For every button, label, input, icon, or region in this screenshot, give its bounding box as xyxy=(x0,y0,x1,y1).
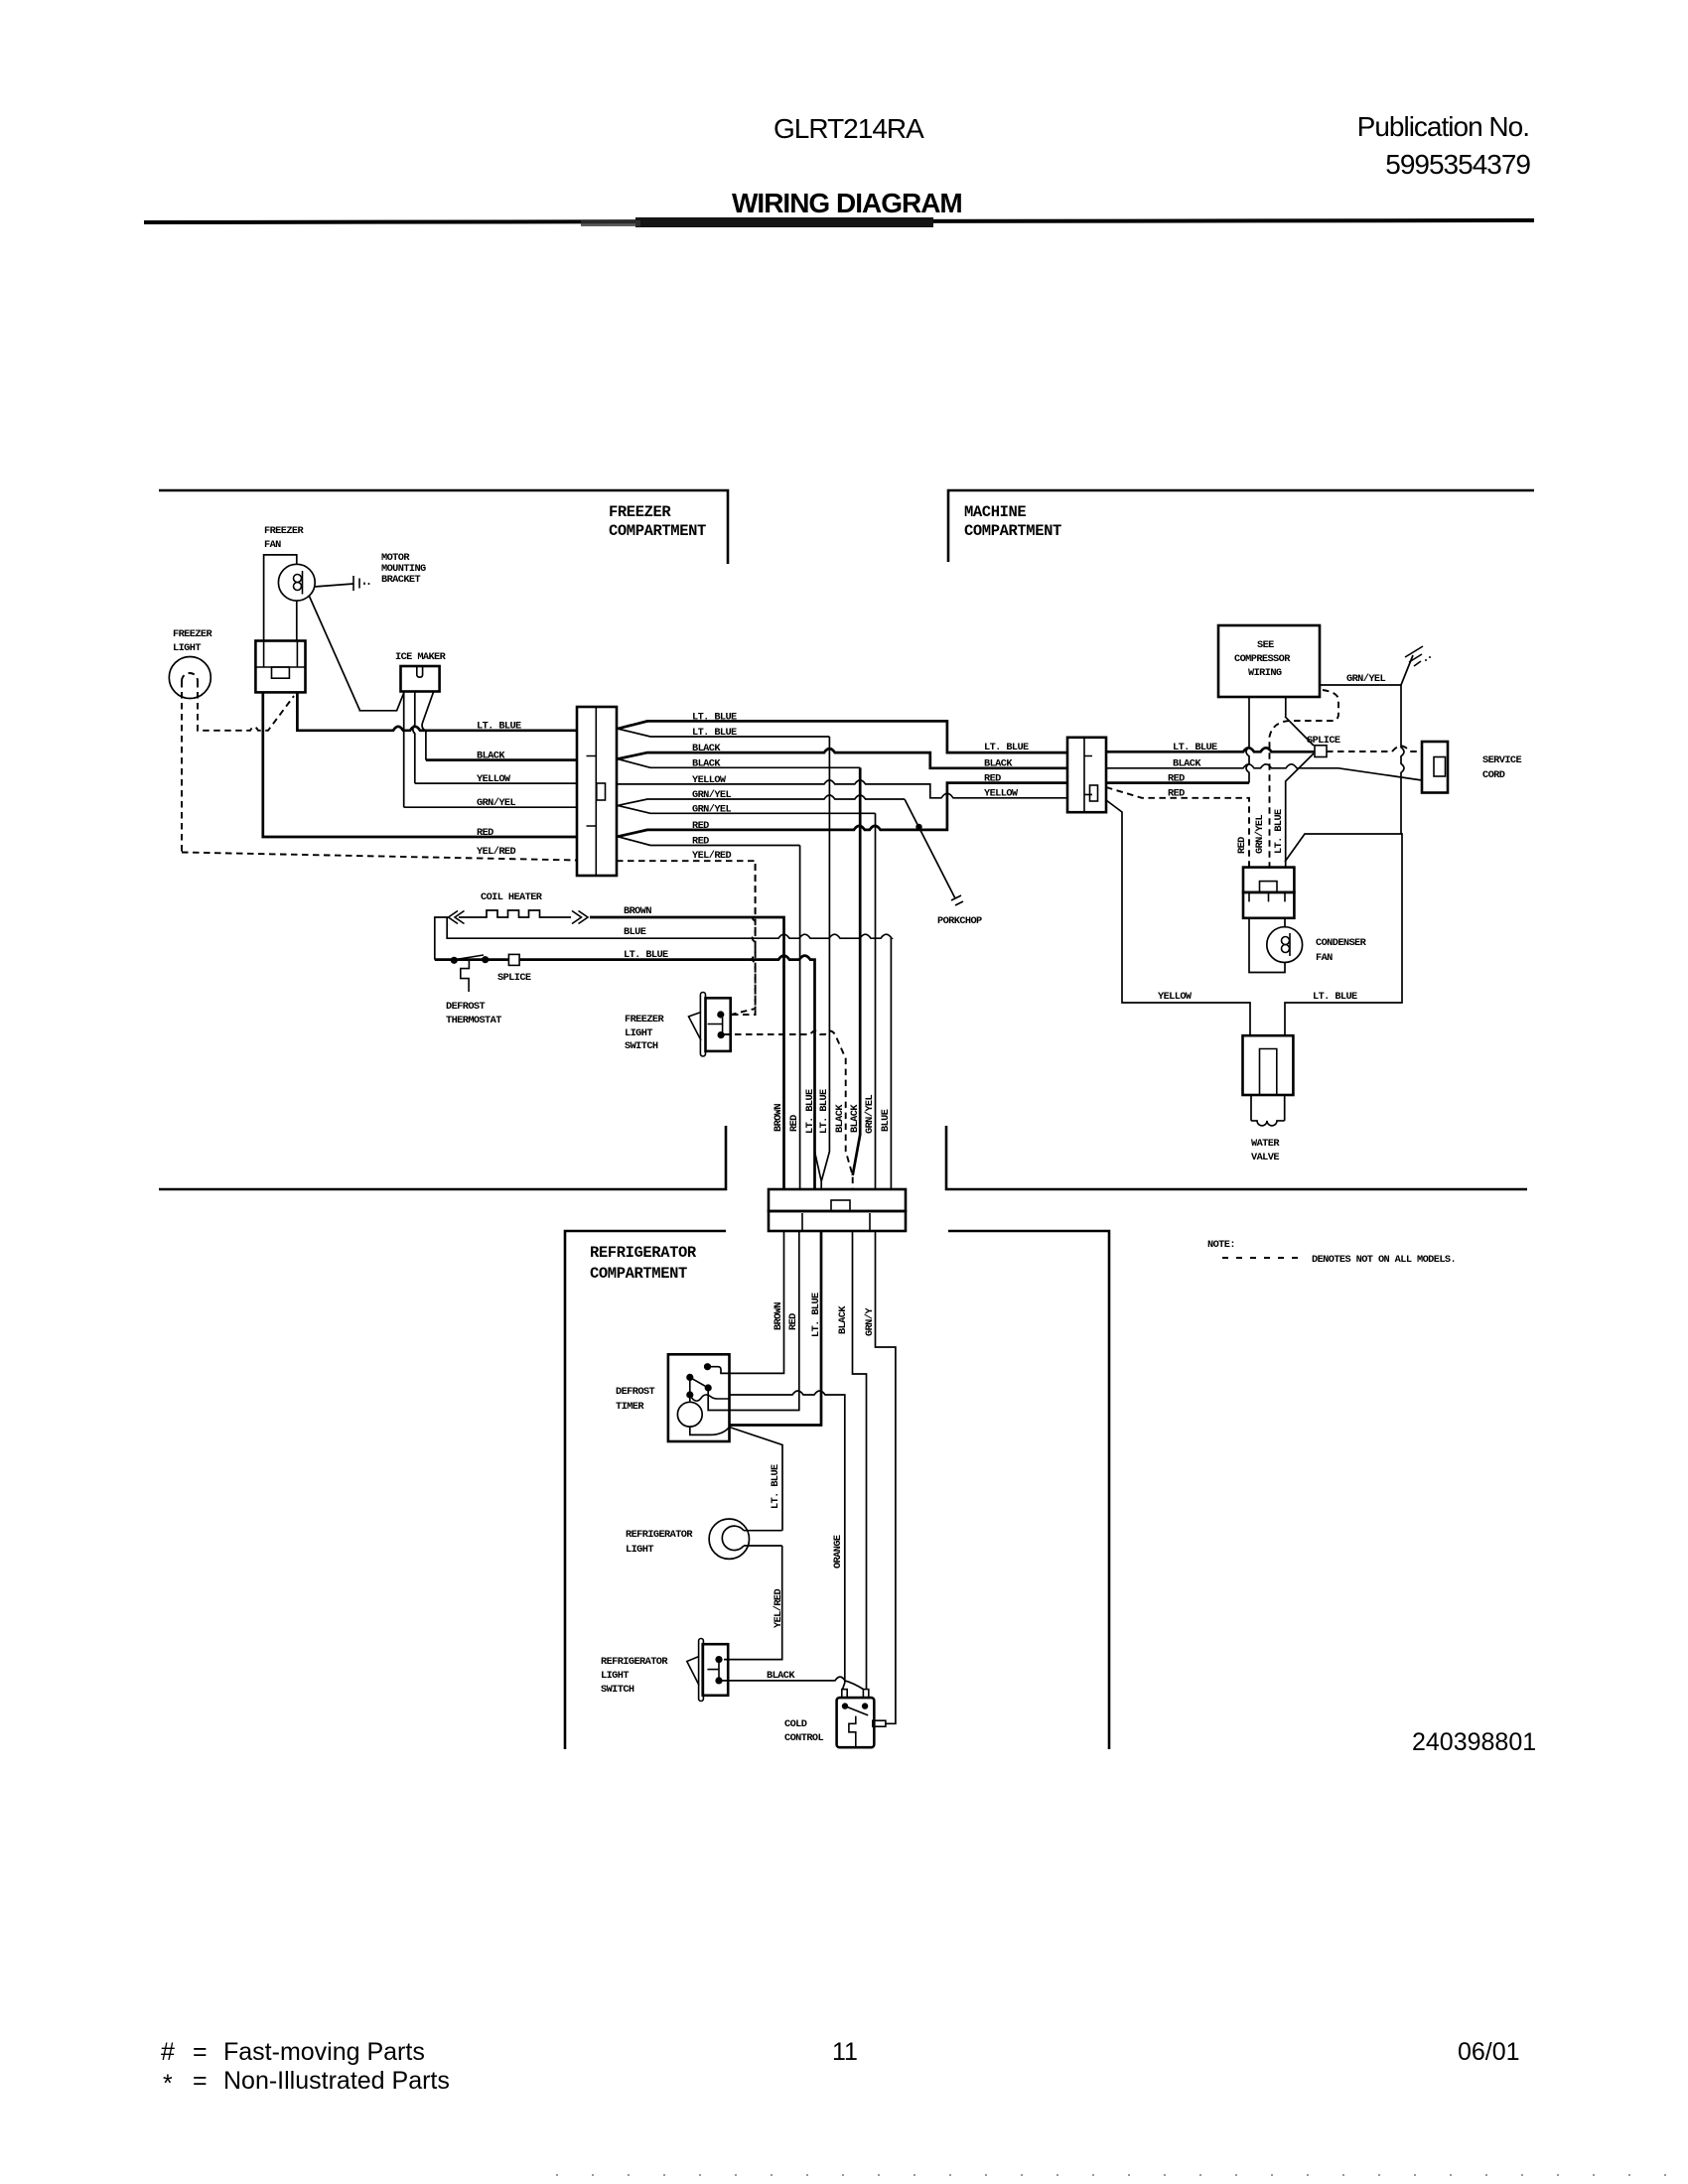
svg-text:BLACK: BLACK xyxy=(477,751,505,762)
svg-text:Non-Illustrated Parts: Non-Illustrated Parts xyxy=(223,2067,450,2095)
svg-text:RED: RED xyxy=(984,773,1001,785)
svg-text:NOTE:: NOTE: xyxy=(1207,1239,1235,1251)
svg-text:DEFROST: DEFROST xyxy=(446,1001,485,1013)
svg-text:FREEZER: FREEZER xyxy=(264,525,304,537)
svg-text:ORANGE: ORANGE xyxy=(832,1535,844,1569)
svg-text:SPLICE: SPLICE xyxy=(497,972,531,984)
svg-text:LT. BLUE: LT. BLUE xyxy=(770,1464,781,1509)
svg-text:LIGHT: LIGHT xyxy=(625,1027,652,1039)
svg-text:ICE MAKER: ICE MAKER xyxy=(395,651,447,663)
svg-text:DENOTES NOT ON ALL MODELS.: DENOTES NOT ON ALL MODELS. xyxy=(1312,1254,1456,1266)
svg-text:GRN/YEL: GRN/YEL xyxy=(1346,673,1385,685)
svg-text:FREEZER: FREEZER xyxy=(625,1014,664,1025)
svg-text:YELLOW: YELLOW xyxy=(1158,991,1193,1003)
svg-text:BLACK: BLACK xyxy=(849,1104,861,1133)
svg-text:BROWN: BROWN xyxy=(773,1302,784,1330)
svg-text:WIRING: WIRING xyxy=(1248,667,1282,679)
svg-text:COMPRESSOR: COMPRESSOR xyxy=(1234,653,1291,665)
svg-text:Publication No.: Publication No. xyxy=(1357,111,1529,142)
svg-text:LT. BLUE: LT. BLUE xyxy=(1313,991,1357,1003)
svg-text:REFRIGERATOR: REFRIGERATOR xyxy=(601,1656,668,1668)
svg-text:BLACK: BLACK xyxy=(834,1104,846,1133)
svg-text:WATER: WATER xyxy=(1251,1138,1280,1150)
svg-text:RED: RED xyxy=(1236,837,1248,854)
svg-text:=: = xyxy=(193,2067,208,2095)
svg-text:BLUE: BLUE xyxy=(624,926,646,938)
svg-text:LIGHT: LIGHT xyxy=(626,1544,653,1556)
svg-text:11: 11 xyxy=(832,2038,858,2066)
svg-text:COMPARTMENT: COMPARTMENT xyxy=(590,1265,687,1283)
svg-text:TIMER: TIMER xyxy=(616,1401,644,1413)
svg-text:YEL/RED: YEL/RED xyxy=(477,846,515,858)
svg-text:COMPARTMENT: COMPARTMENT xyxy=(964,522,1061,540)
svg-text:GRN/Y: GRN/Y xyxy=(864,1307,876,1336)
svg-text:CONDENSER: CONDENSER xyxy=(1316,937,1367,949)
svg-text:SEE: SEE xyxy=(1257,639,1274,651)
svg-text:YEL/RED: YEL/RED xyxy=(692,850,731,862)
svg-text:COIL HEATER: COIL HEATER xyxy=(481,891,543,903)
svg-text:REFRIGERATOR: REFRIGERATOR xyxy=(626,1529,693,1541)
svg-text:FREEZER: FREEZER xyxy=(173,628,212,640)
svg-text:#: # xyxy=(161,2038,175,2066)
svg-text:WIRING DIAGRAM: WIRING DIAGRAM xyxy=(732,188,962,218)
svg-text:PORKCHOP: PORKCHOP xyxy=(937,915,982,927)
svg-text:GLRT214RA: GLRT214RA xyxy=(774,113,924,144)
svg-text:FAN: FAN xyxy=(264,539,281,551)
svg-text:SWITCH: SWITCH xyxy=(625,1040,658,1052)
svg-text:LT. BLUE: LT. BLUE xyxy=(477,721,521,733)
svg-text:LT. BLUE: LT. BLUE xyxy=(804,1089,816,1134)
svg-text:YEL/RED: YEL/RED xyxy=(773,1589,784,1628)
svg-text:FAN: FAN xyxy=(1316,952,1333,964)
svg-text:YELLOW: YELLOW xyxy=(477,773,511,785)
svg-text:BRACKET: BRACKET xyxy=(381,574,420,586)
svg-text:LT. BLUE: LT. BLUE xyxy=(624,949,668,961)
svg-text:GRN/YEL: GRN/YEL xyxy=(477,797,515,809)
svg-text:THERMOSTAT: THERMOSTAT xyxy=(446,1015,501,1026)
svg-text:LT. BLUE: LT. BLUE xyxy=(984,742,1029,753)
svg-text:MACHINE: MACHINE xyxy=(964,503,1026,521)
svg-text:COMPARTMENT: COMPARTMENT xyxy=(609,522,706,540)
svg-text:SWITCH: SWITCH xyxy=(601,1684,634,1696)
svg-text:06/01: 06/01 xyxy=(1458,2038,1520,2066)
svg-text:RED: RED xyxy=(787,1313,799,1330)
svg-text:LIGHT: LIGHT xyxy=(601,1670,629,1682)
svg-text:COLD: COLD xyxy=(784,1718,807,1730)
svg-text:DEFROST: DEFROST xyxy=(616,1386,654,1398)
svg-text:CORD: CORD xyxy=(1482,769,1505,781)
svg-text:240398801: 240398801 xyxy=(1412,1728,1536,1756)
svg-text:GRN/YEL: GRN/YEL xyxy=(1254,815,1266,854)
svg-text:=: = xyxy=(193,2038,208,2066)
svg-text:BLACK: BLACK xyxy=(767,1670,795,1682)
svg-text:LIGHT: LIGHT xyxy=(173,642,201,654)
svg-text:LT. BLUE: LT. BLUE xyxy=(810,1293,822,1337)
svg-text:BROWN: BROWN xyxy=(624,905,651,917)
svg-text:SERVICE: SERVICE xyxy=(1482,754,1521,766)
svg-text:RED: RED xyxy=(477,827,493,839)
svg-text:VALVE: VALVE xyxy=(1251,1152,1279,1163)
svg-text:LT. BLUE: LT. BLUE xyxy=(818,1089,830,1134)
svg-text:BROWN: BROWN xyxy=(773,1104,784,1132)
svg-text:GRN/YEL: GRN/YEL xyxy=(864,1095,876,1134)
svg-text:YELLOW: YELLOW xyxy=(984,788,1019,800)
svg-text:5995354379: 5995354379 xyxy=(1385,149,1530,180)
svg-text:LT. BLUE: LT. BLUE xyxy=(1273,809,1285,854)
svg-text:CONTROL: CONTROL xyxy=(784,1732,823,1744)
svg-text:*: * xyxy=(163,2070,173,2098)
svg-text:BLACK: BLACK xyxy=(837,1305,849,1334)
svg-text:FREEZER: FREEZER xyxy=(609,503,671,521)
svg-text:REFRIGERATOR: REFRIGERATOR xyxy=(590,1244,697,1262)
svg-text:BLACK: BLACK xyxy=(984,758,1013,770)
svg-text:Fast-moving Parts: Fast-moving Parts xyxy=(223,2038,425,2066)
svg-text:BLUE: BLUE xyxy=(880,1109,892,1132)
svg-text:RED: RED xyxy=(788,1115,800,1132)
